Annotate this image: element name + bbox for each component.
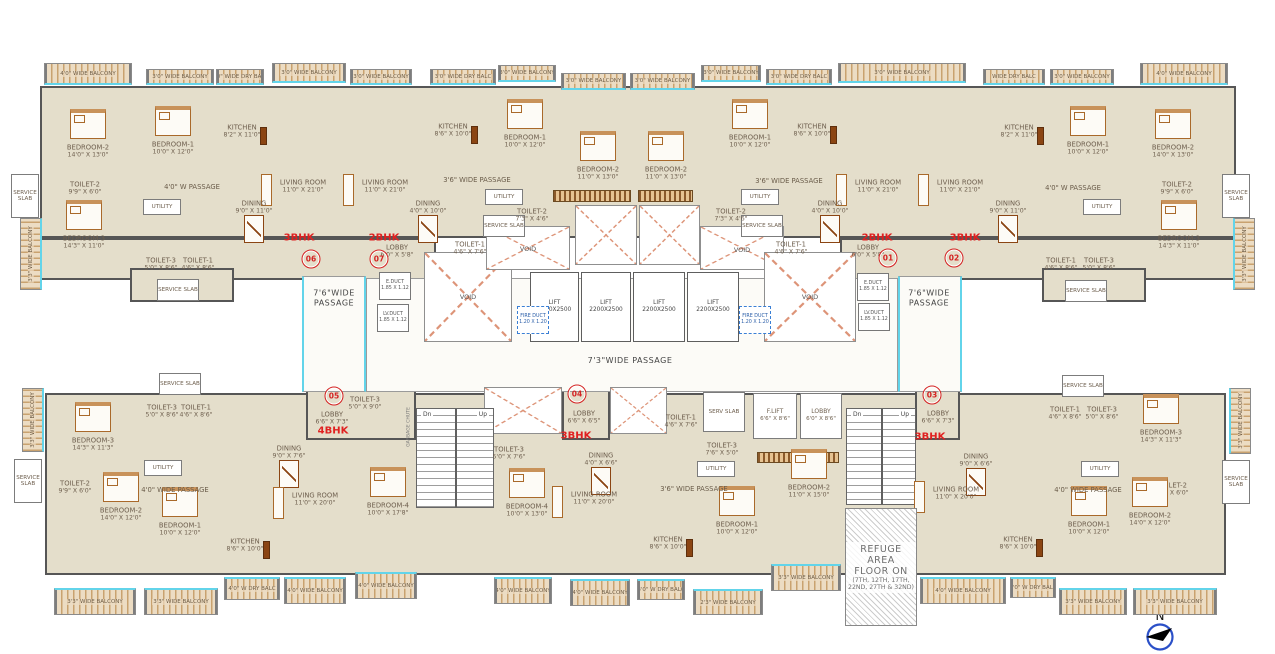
room-label: BEDROOM-214'0" X 12'0" [100, 506, 142, 521]
room-dims: 4'6" X 8'6" [1048, 413, 1081, 420]
room-name: TOILET-2 [515, 207, 548, 215]
room-label: KITCHEN8'6" X 10'0" [435, 122, 472, 137]
unit-type-label: 4BHK [318, 426, 349, 437]
bed-icon [1070, 106, 1106, 136]
dining-table-icon [418, 215, 438, 243]
core-cell: LOBBY6'0" X 8'6" [800, 393, 842, 439]
room-label: TOILET-14'6" X 8'6" [1044, 256, 1077, 271]
room-label: TOILET-29'9" X 6'0" [58, 479, 91, 494]
room-dims: 10'0" X 12'0" [729, 141, 771, 148]
room-label: BEDROOM-110'0" X 12'0" [159, 521, 201, 536]
balcony-strip: 4'0" WIDE BALCONY [570, 579, 630, 606]
room-name: DINING [990, 199, 1027, 207]
bed-icon [509, 468, 545, 498]
balcony-strip: 3'0" WIDE BALCONY [838, 63, 966, 83]
balcony-label: 4'0" W DRY BALC [227, 586, 276, 592]
balcony-strip: 3'0" WIDE BALCONY [498, 65, 556, 82]
unit-number-03: 03 [923, 386, 942, 405]
balcony-label: 3'0" WIDE BALCONY [352, 74, 410, 80]
service-slab: SERVICE SLAB [1065, 280, 1107, 302]
kitchen-counter-icon [830, 126, 837, 144]
room-name: KITCHEN [794, 122, 831, 130]
service-slab: SERVICE SLAB [14, 459, 42, 503]
lift-shaft: LIFT2200X2500 [633, 272, 685, 342]
room-dims: 8'6" X 10'0" [650, 543, 687, 550]
room-label: DINING4'0" X 10'0" [410, 199, 447, 214]
balcony-strip: 3'0" WIDE DRY BALC [216, 69, 264, 85]
balcony-label: 3'3" WIDE BALCONY [152, 599, 210, 605]
unit-number-06: 06 [302, 250, 321, 269]
room-label: BEDROOM-314'3" X 11'0" [1158, 234, 1200, 249]
unit-type-label: 3BHK [561, 431, 592, 442]
balcony-strip: 3'3" WIDE BALCONY [144, 588, 218, 615]
bed-icon [370, 467, 406, 497]
balcony-strip: 3'0" WIDE DRY BALC [766, 69, 832, 85]
dining-table-icon [820, 215, 840, 243]
duct-educt: E.DUCT1.85 X 1.12 [379, 272, 411, 300]
balcony-label: 3'3" WIDE BALCONY [1064, 599, 1122, 605]
wardrobe-strip [553, 190, 631, 202]
room-dims: 6'6" X 7'3" [921, 417, 954, 424]
room-name: BEDROOM-1 [1067, 140, 1109, 148]
bed-icon [1143, 394, 1179, 424]
room-name: LOBBY [567, 409, 600, 417]
room-dims: 8'2" X 11'0" [1001, 131, 1038, 138]
room-name: BEDROOM-1 [1068, 520, 1110, 528]
room-dims: 5'0" X 8'6" [145, 411, 178, 418]
room-dims: 10'0" X 12'0" [152, 148, 194, 155]
passage-label: 7'6"WIDEPASSAGE [313, 288, 355, 307]
room-dims: 9'9" X 6'0" [68, 188, 101, 195]
room-dims: 4'6" X 7'6" [453, 248, 486, 255]
room-dims: 5'0" X 8'6" [1082, 264, 1115, 271]
lift-size: 2200X2500 [589, 307, 622, 314]
room-name: TOILET-3 [1085, 405, 1118, 413]
room-label: BEDROOM-110'0" X 12'0" [1067, 140, 1109, 155]
room-name: TOILET-1 [181, 256, 214, 264]
room-dims: 11'0" X 15'0" [788, 491, 830, 498]
balcony-label: 4'0" WIDE BALCONY [571, 590, 629, 596]
unit-number-05: 05 [325, 387, 344, 406]
balcony-strip: 3'3" WIDE BALCONY [1059, 588, 1127, 615]
bed-icon [75, 402, 111, 432]
room-dims: 11'0" X 20'0" [292, 499, 338, 506]
void-shaft [575, 205, 637, 265]
compass-icon [1144, 622, 1176, 652]
room-label: KITCHEN8'2" X 11'0" [1001, 123, 1038, 138]
room-dims: 9'0" X 7'6" [272, 452, 305, 459]
room-dims: 11'0" X 20'0" [933, 493, 979, 500]
balcony-label: 3'3" WIDE BALCONY [777, 575, 835, 581]
room-label: TOILET-35'0" X 9'0" [348, 395, 381, 410]
room-dims: 14'0" X 12'0" [1129, 519, 1171, 526]
balcony-strip: 4'0" WIDE BALCONY [284, 577, 346, 604]
room-dims: 9'0" X 11'0" [990, 207, 1027, 214]
room-name: LOBBY [921, 409, 954, 417]
room-name: LIVING ROOM [937, 178, 983, 186]
room-label: KITCHEN8'6" X 10'0" [794, 122, 831, 137]
sofa-icon [343, 174, 354, 206]
stairs-down-label: Dn [421, 411, 433, 418]
bed-icon [507, 99, 543, 129]
room-name: BEDROOM-2 [1152, 143, 1194, 151]
room-name: BEDROOM-3 [63, 234, 105, 242]
room-label: KITCHEN8'6" X 10'0" [1000, 535, 1037, 550]
room-name: TOILET-2 [1160, 180, 1193, 188]
room-label: TOILET-27'3" X 4'6" [515, 207, 548, 222]
room-dims: 7'3" X 4'6" [515, 215, 548, 222]
room-dims: 8'6" X 10'0" [227, 545, 264, 552]
balcony-strip: 3'0" WIDE BALCONY [701, 65, 761, 82]
room-label: BEDROOM-314'3" X 11'0" [63, 234, 105, 249]
balcony-strip: 3'0" WIDE BALCONY [272, 63, 346, 83]
balcony-label: 4'0" WIDE BALCONY [934, 588, 992, 594]
room-name: LIVING ROOM [855, 178, 901, 186]
lift-label: LIFT [600, 300, 612, 307]
room-name: BEDROOM-2 [67, 143, 109, 151]
void-label: VOID [765, 293, 855, 301]
wardrobe-strip [638, 190, 693, 202]
room-name: LOBBY [380, 243, 413, 251]
balcony-label: 3'3" WIDE BALCONY [1242, 225, 1248, 283]
room-dims: 14'0" X 12'0" [100, 514, 142, 521]
bed-icon [1161, 200, 1197, 230]
bed-icon [1155, 109, 1191, 139]
balcony-strip: 3'3" WIDE BALCONY [22, 388, 44, 452]
room-label: TOILET-37'6" X 5'0" [705, 441, 738, 456]
room-dims: 8'6" X 10'0" [1000, 543, 1037, 550]
balcony-strip: 4'0" W DRY BALC [1010, 577, 1056, 598]
room-dims: 14'3" X 11'0" [63, 242, 105, 249]
room-dims: 14'0" X 13'0" [67, 151, 109, 158]
bed-icon [155, 106, 191, 136]
void-label: VOID [487, 245, 569, 253]
room-label: TOILET-14'6" X 7'6" [774, 240, 807, 255]
balcony-strip: 3'3" WIDE BALCONY [54, 588, 136, 615]
room-label: LIVING ROOM11'0" X 20'0" [292, 491, 338, 506]
room-label: BEDROOM-214'0" X 12'0" [1129, 511, 1171, 526]
balcony-strip: 3'0" WIDE DRY BALC [430, 69, 496, 85]
kitchen-counter-icon [1036, 539, 1043, 557]
room-name: TOILET-1 [774, 240, 807, 248]
void-shaft [639, 205, 700, 265]
unit-type-label: 2BHK [862, 233, 893, 244]
balcony-strip: 3'0" WIDE BALCONY [630, 73, 695, 90]
balcony-label: 3'0" WIDE DRY BALC [770, 74, 829, 80]
room-label: LIVING ROOM11'0" X 21'0" [937, 178, 983, 193]
balcony-strip: 3'0" WIDE BALCONY [561, 73, 626, 90]
passage-label: 4'0" WIDE PASSAGE [1054, 486, 1121, 494]
passage-label: 3'6" WIDE PASSAGE [755, 177, 822, 185]
north-arrow: N [1143, 610, 1177, 654]
room-dims: 11'0" X 13'0" [645, 173, 687, 180]
room-name: LOBBY [315, 410, 348, 418]
lift-shaft: LIFT2200X2500 [581, 272, 631, 342]
balcony-label: 3'3" WIDE BALCONY [66, 599, 124, 605]
room-dims: 5'0" X 7'6" [492, 453, 525, 460]
room-dims: 14'3" X 11'3" [72, 444, 114, 451]
room-label: DINING4'0" X 10'0" [812, 199, 849, 214]
balcony-strip: 4'0" WIDE BALCONY [1140, 63, 1228, 85]
service-slab: SERVICE SLAB [11, 174, 39, 218]
room-name: TOILET-1 [1044, 256, 1077, 264]
unit-type-label: 3BHK [284, 233, 315, 244]
room-dims: 14'0" X 13'0" [1152, 151, 1194, 158]
room-dims: 9'0" X 11'0" [236, 207, 273, 214]
room-name: TOILET-1 [179, 403, 212, 411]
balcony-strip: 3'3" WIDE BALCONY [1133, 588, 1217, 615]
room-name: LIVING ROOM [280, 178, 326, 186]
unit-number-04: 04 [568, 385, 587, 404]
room-label: BEDROOM-314'3" X 11'3" [72, 436, 114, 451]
bed-icon [103, 472, 139, 502]
room-label: BEDROOM-410'0" X 13'0" [506, 502, 548, 517]
service-slab: SERV SLAB [703, 392, 745, 432]
balcony-label: 3'0" WIDE BALCONY [565, 78, 623, 84]
balcony-strip: 3'3" WIDE BALCONY [20, 218, 42, 290]
room-dims: 4'0" X 10'0" [410, 207, 447, 214]
room-name: TOILET-3 [145, 403, 178, 411]
room-dims: 10'0" X 13'0" [506, 510, 548, 517]
room-label: KITCHEN8'6" X 10'0" [227, 537, 264, 552]
void-shaft [610, 387, 667, 434]
room-dims: 11'0" X 21'0" [280, 186, 326, 193]
balcony-label: 3'0" WIDE BALCONY [634, 78, 692, 84]
void-shaft [484, 387, 562, 434]
dining-table-icon [244, 215, 264, 243]
room-label: TOILET-27'3" X 4'6" [714, 207, 747, 222]
room-name: DINING [584, 451, 617, 459]
void-shaft: VOID [764, 252, 856, 342]
bed-icon [732, 99, 768, 129]
room-dims: 5'0" X 9'0" [348, 403, 381, 410]
lift-label: LIFT [549, 300, 561, 307]
room-name: TOILET-3 [144, 256, 177, 264]
bed-icon [580, 131, 616, 161]
room-dims: 10'0" X 12'0" [1068, 528, 1110, 535]
room-dims: 10'0" X 17'8" [367, 509, 409, 516]
room-label: LIVING ROOM11'0" X 20'0" [571, 490, 617, 505]
balcony-strip: 4'0" WIDE BALCONY [920, 577, 1006, 604]
sofa-icon [552, 486, 563, 518]
room-label: KITCHEN8'2" X 11'0" [224, 123, 261, 138]
room-dims: 10'0" X 12'0" [159, 529, 201, 536]
room-label: LIVING ROOM11'0" X 20'0" [933, 485, 979, 500]
room-name: BEDROOM-4 [367, 501, 409, 509]
balcony-label: 3'3" WIDE BALCONY [1238, 392, 1244, 450]
balcony-label: 4'0" WIDE BALCONY [494, 588, 552, 594]
lift-size: 2200X2500 [642, 307, 675, 314]
room-label: LIVING ROOM11'0" X 21'0" [280, 178, 326, 193]
room-name: TOILET-3 [705, 441, 738, 449]
balcony-label: 3'0" WIDE BALCONY [280, 70, 338, 76]
unit-number-07: 07 [370, 250, 389, 269]
floor-plan: N VOIDVOIDVOIDVOIDLIFT2200X2500LIFT2200X… [0, 0, 1275, 654]
room-dims: 11'0" X 21'0" [855, 186, 901, 193]
room-name: TOILET-3 [348, 395, 381, 403]
balcony-label: 4'0" WIDE BALCONY [357, 583, 415, 589]
balcony-strip: 3'3" WIDE BALCONY [1233, 218, 1255, 290]
room-label: BEDROOM-214'0" X 13'0" [67, 143, 109, 158]
room-dims: 14'3" X 11'3" [1140, 436, 1182, 443]
room-name: KITCHEN [1001, 123, 1038, 131]
room-name: KITCHEN [227, 537, 264, 545]
room-label: BEDROOM-211'0" X 13'0" [645, 165, 687, 180]
room-label: BEDROOM-110'0" X 12'0" [716, 520, 758, 535]
room-name: TOILET-2 [58, 479, 91, 487]
room-label: TOILET-14'6" X 8'6" [179, 403, 212, 418]
room-dims: 6'6" X 6'5" [567, 417, 600, 424]
room-label: TOILET-35'0" X 8'6" [1085, 405, 1118, 420]
balcony-strip: 4'0" WIDE BALCONY [494, 577, 552, 604]
balcony-strip: 3'3" WIDE BALCONY [771, 564, 841, 591]
room-name: BEDROOM-2 [100, 506, 142, 514]
passage-label: 3'6" WIDE PASSAGE [443, 176, 510, 184]
duct-fireduct: FIRE DUCT1.20 X 1.20 [739, 306, 771, 334]
room-label: TOILET-14'6" X 7'6" [453, 240, 486, 255]
utility-box: UTILITY [697, 461, 735, 477]
room-dims: 11'0" X 13'0" [577, 173, 619, 180]
room-name: KITCHEN [435, 122, 472, 130]
room-name: BEDROOM-1 [152, 140, 194, 148]
room-label: DINING9'0" X 7'6" [272, 444, 305, 459]
room-label: TOILET-35'0" X 8'6" [144, 256, 177, 271]
room-label: TOILET-29'9" X 6'0" [68, 180, 101, 195]
duct-fireduct: FIRE DUCT1.20 X 1.20 [517, 306, 549, 334]
room-name: TOILET-1 [1048, 405, 1081, 413]
lift-shaft: LIFT2200X2500 [687, 272, 739, 342]
room-dims: 7'3" X 4'6" [714, 215, 747, 222]
kitchen-counter-icon [1037, 127, 1044, 145]
room-label: TOILET-29'9" X 6'0" [1160, 180, 1193, 195]
room-dims: 4'6" X 8'6" [1044, 264, 1077, 271]
room-label: DINING9'0" X 11'0" [236, 199, 273, 214]
room-name: BEDROOM-1 [504, 133, 546, 141]
room-dims: 10'0" X 12'0" [1067, 148, 1109, 155]
bed-icon [791, 449, 827, 479]
refuge-label: REFUGE AREAFLOOR ON(7TH, 12TH, 17TH,22ND… [846, 542, 916, 593]
balcony-label: WIDE DRY BALC [991, 74, 1037, 80]
room-name: BEDROOM-1 [159, 521, 201, 529]
room-name: BEDROOM-4 [506, 502, 548, 510]
balcony-strip: 2'3" WIDE BALCONY [693, 589, 763, 615]
room-dims: 10'0" X 12'0" [504, 141, 546, 148]
room-label: LIVING ROOM11'0" X 21'0" [362, 178, 408, 193]
floor-plate [40, 86, 1236, 238]
unit-type-label: 3BHK [950, 233, 981, 244]
room-name: TOILET-1 [453, 240, 486, 248]
unit-number-02: 02 [945, 249, 964, 268]
balcony-label: 3'3" WIDE BALCONY [28, 225, 34, 283]
duct-lvduct: LV.DUCT1.85 X 1.12 [858, 303, 890, 331]
room-name: TOILET-2 [68, 180, 101, 188]
balcony-label: 4'0" WIDE BALCONY [59, 71, 117, 77]
room-name: TOILET-3 [492, 445, 525, 453]
room-name: TOILET-1 [664, 413, 697, 421]
room-dims: 4'6" X 8'6" [181, 264, 214, 271]
room-dims: 8'2" X 11'0" [224, 131, 261, 138]
room-dims: 4'6" X 7'6" [774, 248, 807, 255]
kitchen-counter-icon [260, 127, 267, 145]
balcony-label: 4'0" W DRY BALC [1010, 585, 1056, 591]
room-name: LIVING ROOM [933, 485, 979, 493]
sofa-icon [273, 487, 284, 519]
room-dims: 11'0" X 21'0" [362, 186, 408, 193]
room-label: DINING4'0" X 6'6" [584, 451, 617, 466]
unit-type-label: 2BHK [369, 233, 400, 244]
room-dims: 9'0" X 6'6" [959, 460, 992, 467]
room-dims: 4'0" X 6'6" [584, 459, 617, 466]
room-dims: 9'9" X 6'0" [1160, 188, 1193, 195]
room-name: BEDROOM-2 [788, 483, 830, 491]
balcony-strip: 3'3" WIDE BALCONY [1229, 388, 1251, 454]
passage-label: 7'6"WIDEPASSAGE [908, 288, 950, 307]
balcony-strip: 4'0" W DRY BALC [224, 577, 280, 600]
core-cell: F.LIFT6'6" X 8'6" [753, 393, 797, 439]
staircase: DnUp [416, 408, 494, 508]
room-name: LIVING ROOM [362, 178, 408, 186]
bed-icon [70, 109, 106, 139]
room-name: BEDROOM-1 [716, 520, 758, 528]
unit-number-01: 01 [879, 249, 898, 268]
room-dims: 9'9" X 6'0" [58, 487, 91, 494]
bed-icon [1132, 477, 1168, 507]
utility-box: UTILITY [485, 189, 523, 205]
room-dims: 14'3" X 11'0" [1158, 242, 1200, 249]
room-label: TOILET-14'6" X 8'6" [1048, 405, 1081, 420]
refuge-area: REFUGE AREAFLOOR ON(7TH, 12TH, 17TH,22ND… [845, 508, 917, 626]
balcony-label: 3'0" WIDE BALCONY [1053, 74, 1111, 80]
room-name: BEDROOM-3 [1140, 428, 1182, 436]
room-label: BEDROOM-314'3" X 11'3" [1140, 428, 1182, 443]
room-label: BEDROOM-110'0" X 12'0" [729, 133, 771, 148]
room-label: TOILET-35'0" X 8'6" [1082, 256, 1115, 271]
room-name: BEDROOM-3 [72, 436, 114, 444]
dining-table-icon [998, 215, 1018, 243]
service-slab: SERVICE SLAB [1222, 460, 1250, 504]
passage-label: 7'3"WIDE PASSAGE [588, 356, 673, 366]
balcony-strip: WIDE DRY BALC [983, 69, 1045, 85]
room-name: BEDROOM-2 [1129, 511, 1171, 519]
room-label: TOILET-35'0" X 8'6" [145, 403, 178, 418]
room-name: DINING [410, 199, 447, 207]
balcony-label: 2'3" WIDE BALCONY [699, 600, 757, 606]
room-name: KITCHEN [650, 535, 687, 543]
room-name: LIVING ROOM [292, 491, 338, 499]
utility-box: UTILITY [144, 460, 182, 476]
stairs-down-label: Dn [851, 411, 863, 418]
balcony-label: 3'3" WIDE BALCONY [30, 391, 36, 449]
passage-label: 3'6" WIDE PASSAGE [660, 485, 727, 493]
room-dims: 4'0" X 10'0" [812, 207, 849, 214]
passage-label: 4'0" WIDE PASSAGE [141, 486, 208, 494]
room-label: LOBBY6'6" X 6'5" [567, 409, 600, 424]
room-name: BEDROOM-2 [577, 165, 619, 173]
room-dims: 8'6" X 10'0" [794, 130, 831, 137]
balcony-strip: 3'0" W DRY BALC [637, 579, 685, 600]
kitchen-counter-icon [263, 541, 270, 559]
lift-size: 2200X2500 [696, 307, 729, 314]
utility-box: UTILITY [741, 189, 779, 205]
unit-type-label: 3BHK [915, 432, 946, 443]
balcony-strip: 3'0" WIDE BALCONY [1050, 69, 1114, 85]
room-dims: 8'6" X 10'0" [435, 130, 472, 137]
service-slab: SERVICE SLAB [159, 373, 201, 395]
room-label: BEDROOM-211'0" X 15'0" [788, 483, 830, 498]
service-slab: SERVICE SLAB [1222, 174, 1250, 218]
room-name: BEDROOM-3 [1158, 234, 1200, 242]
room-dims: 4'6" X 8'6" [179, 411, 212, 418]
